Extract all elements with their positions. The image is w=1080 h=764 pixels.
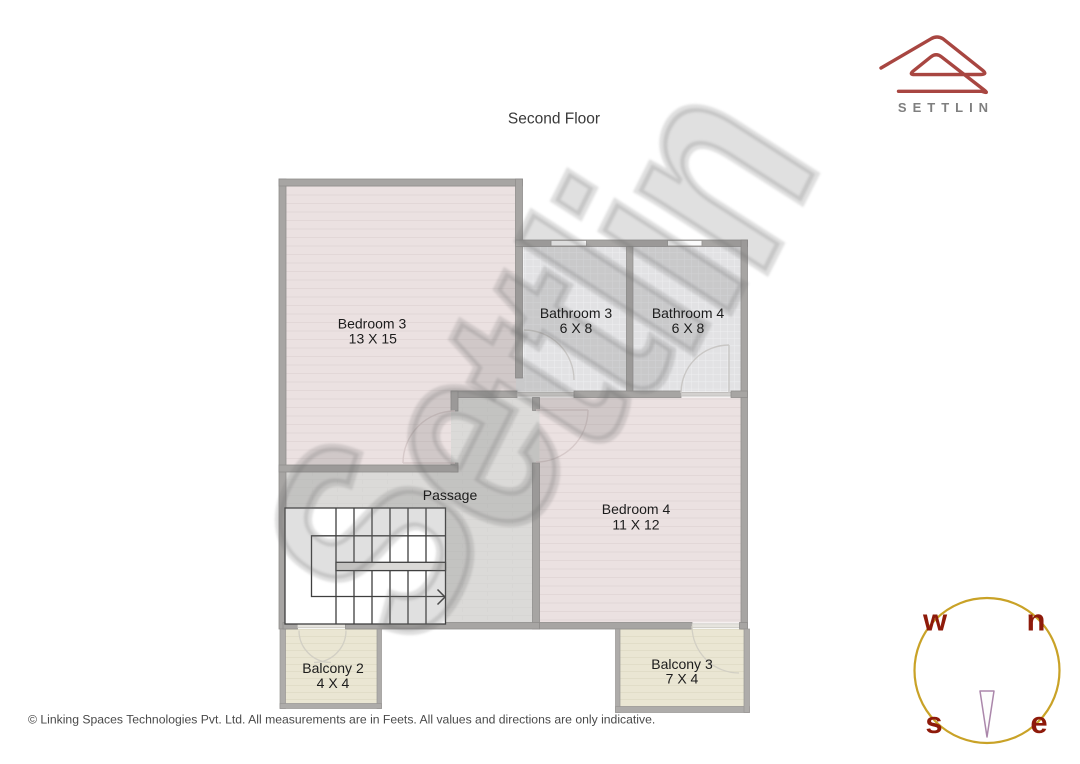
svg-text:e: e — [1030, 705, 1047, 740]
svg-text:w: w — [922, 603, 948, 638]
svg-text:13 X 15: 13 X 15 — [349, 330, 397, 346]
svg-text:11 X 12: 11 X 12 — [612, 517, 659, 533]
svg-text:© Linking Spaces Technologies: © Linking Spaces Technologies Pvt. Ltd. … — [28, 713, 655, 727]
svg-text:s: s — [925, 705, 942, 740]
svg-text:Bedroom 3: Bedroom 3 — [338, 315, 407, 331]
svg-text:Balcony 3: Balcony 3 — [651, 656, 713, 672]
svg-text:Bathroom 4: Bathroom 4 — [652, 305, 725, 321]
svg-text:4 X 4: 4 X 4 — [317, 675, 350, 691]
svg-text:Passage: Passage — [423, 487, 478, 503]
svg-text:Bathroom 3: Bathroom 3 — [540, 305, 613, 321]
svg-text:n: n — [1027, 603, 1046, 638]
svg-text:SETTLIN: SETTLIN — [898, 100, 994, 115]
svg-text:Balcony 2: Balcony 2 — [302, 660, 364, 676]
svg-text:7 X 4: 7 X 4 — [666, 671, 699, 687]
svg-text:6 X 8: 6 X 8 — [560, 320, 593, 336]
svg-text:6 X 8: 6 X 8 — [672, 320, 705, 336]
svg-text:Bedroom 4: Bedroom 4 — [602, 501, 671, 517]
